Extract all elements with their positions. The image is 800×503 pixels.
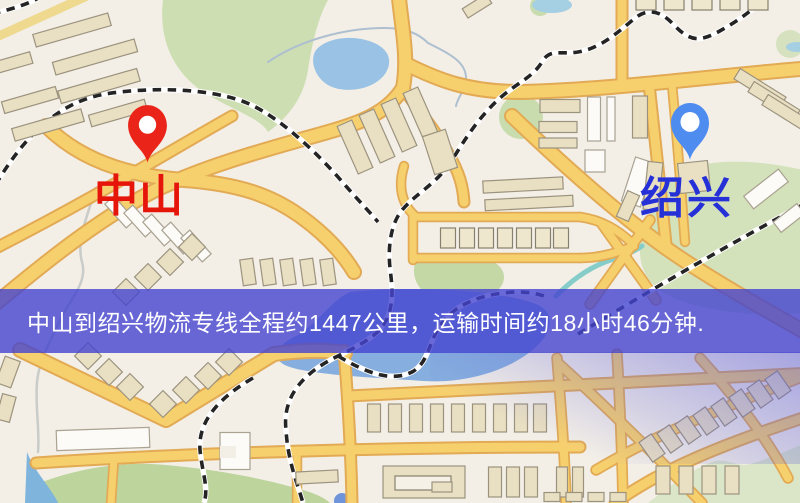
route-info-text: 中山到绍兴物流专线全程约1447公里，运输时间约18小时46分钟. — [27, 304, 704, 338]
map-image — [0, 0, 800, 503]
origin-city-label: 中山 — [94, 175, 184, 219]
route-info-banner: 中山到绍兴物流专线全程约1447公里，运输时间约18小时46分钟. — [0, 289, 800, 353]
destination-city-label: 绍兴 — [640, 177, 734, 221]
map-screenshot: 中山 绍兴 中山到绍兴物流专线全程约1447公里，运输时间约18小时46分钟. — [0, 0, 800, 503]
